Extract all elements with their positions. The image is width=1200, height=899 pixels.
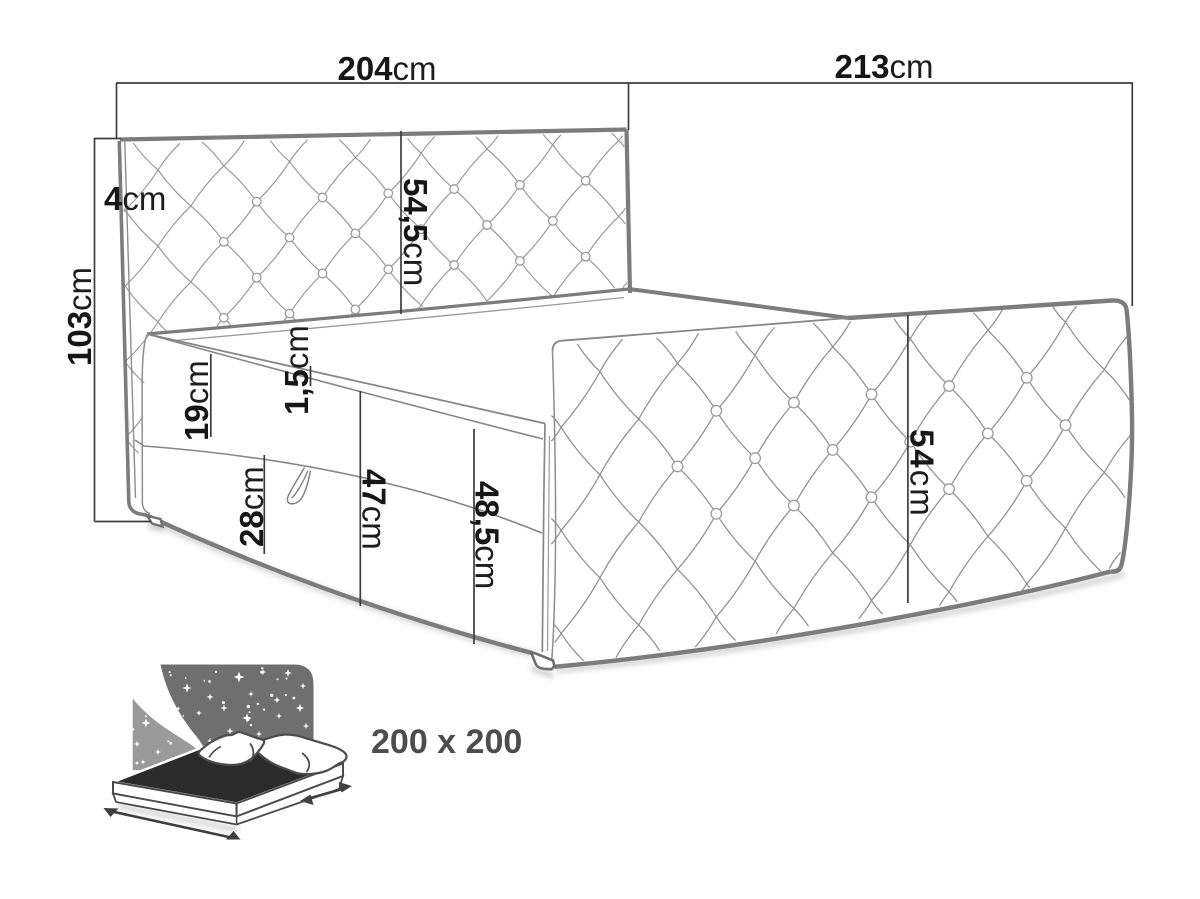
svg-text:213cm: 213cm [834, 48, 933, 85]
svg-text:1,5cm: 1,5cm [278, 325, 315, 415]
svg-text:28cm: 28cm [233, 466, 270, 547]
svg-text:19cm: 19cm [178, 360, 215, 441]
svg-text:204cm: 204cm [337, 50, 436, 87]
svg-text:48,5cm: 48,5cm [469, 481, 506, 589]
svg-text:200 x 200: 200 x 200 [371, 723, 522, 761]
svg-text:103cm: 103cm [61, 267, 98, 366]
svg-text:47cm: 47cm [356, 469, 393, 550]
svg-text:54,5cm: 54,5cm [397, 178, 434, 286]
svg-text:54cm: 54cm [904, 429, 941, 518]
svg-text:4cm: 4cm [104, 180, 166, 217]
